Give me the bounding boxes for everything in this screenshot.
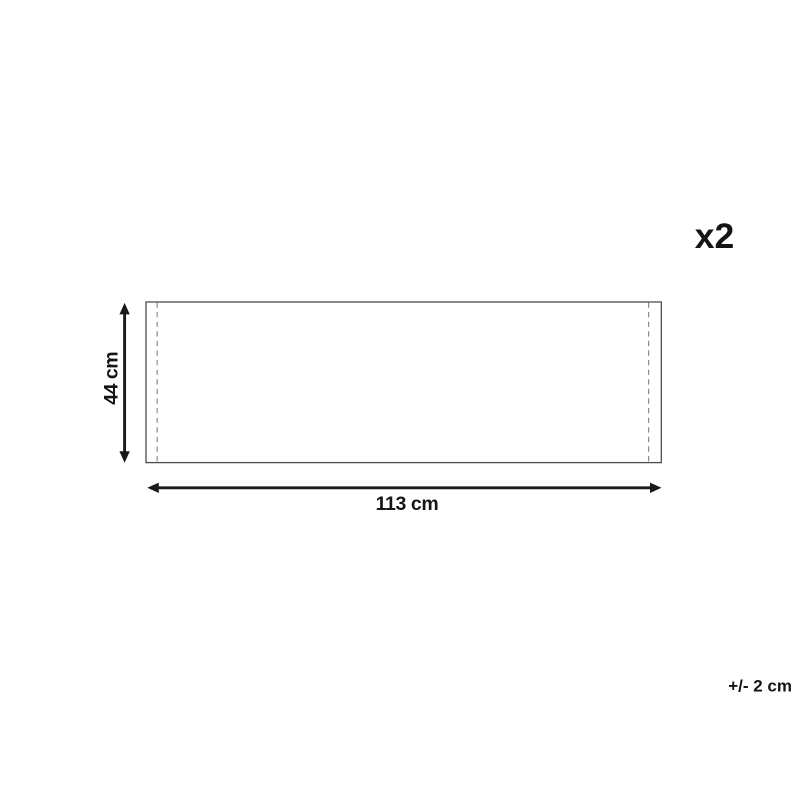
svg-text:113 cm: 113 cm: [376, 493, 439, 515]
svg-text:x2: x2: [695, 216, 735, 256]
svg-text:+/- 2 cm: +/- 2 cm: [728, 677, 792, 696]
svg-text:44 cm: 44 cm: [101, 352, 123, 405]
